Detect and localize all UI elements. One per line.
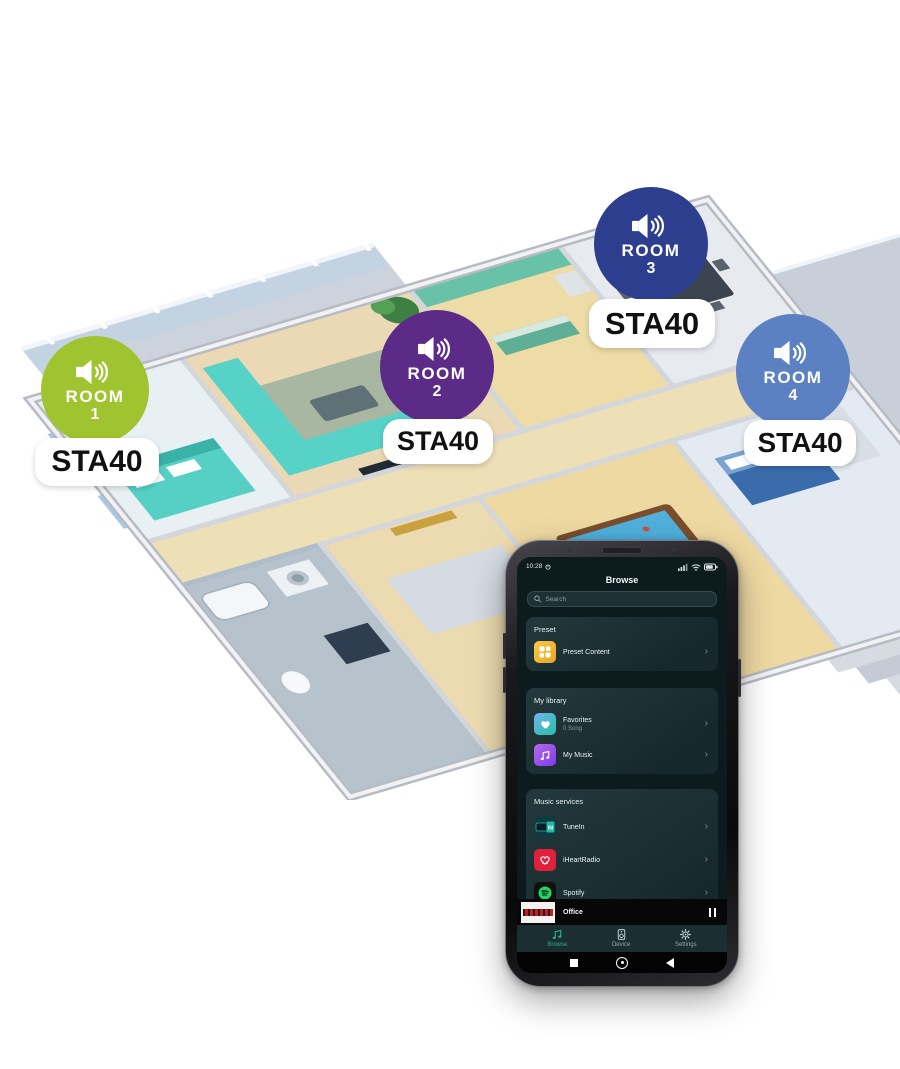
room-3-badge: ROOM 3 bbox=[594, 187, 708, 301]
wifi-icon bbox=[691, 563, 701, 571]
device-model-text: STA40 bbox=[51, 445, 142, 479]
tab-device[interactable]: Device bbox=[612, 928, 630, 949]
room-number: 2 bbox=[433, 383, 442, 400]
list-item-tunein[interactable]: IN TuneIn › bbox=[534, 816, 710, 838]
preset-grid-icon bbox=[534, 641, 556, 663]
search-input[interactable] bbox=[545, 596, 710, 603]
android-nav-bar bbox=[517, 952, 727, 973]
room-2-badge: ROOM 2 bbox=[380, 310, 494, 424]
battery-icon bbox=[704, 563, 718, 571]
page-title: Browse bbox=[517, 573, 727, 588]
preset-card: Preset Preset Content › bbox=[526, 617, 718, 671]
now-playing-title: Office bbox=[563, 909, 583, 916]
proximity-sensor-icon bbox=[672, 548, 676, 552]
heart-icon bbox=[534, 713, 556, 735]
room-4-badge: ROOM 4 bbox=[736, 314, 850, 428]
chevron-right-icon: › bbox=[705, 719, 710, 729]
alarm-icon bbox=[545, 564, 551, 570]
section-label: My library bbox=[534, 696, 710, 706]
room-3-device-label: STA40 bbox=[589, 299, 715, 348]
tab-browse[interactable]: Browse bbox=[547, 928, 567, 949]
item-sublabel: 0 Song bbox=[563, 725, 592, 733]
item-label: Favorites bbox=[563, 716, 592, 725]
room-2-device-label: STA40 bbox=[383, 419, 493, 464]
front-camera-icon bbox=[568, 548, 572, 552]
device-model-text: STA40 bbox=[757, 427, 842, 459]
speaker-icon bbox=[418, 335, 456, 363]
room-number: 3 bbox=[647, 260, 656, 277]
volume-up-button bbox=[503, 633, 506, 659]
iheartradio-logo bbox=[534, 849, 556, 871]
tunein-logo: IN bbox=[534, 816, 556, 838]
section-label: Preset bbox=[534, 625, 710, 635]
search-icon bbox=[534, 595, 541, 603]
chevron-right-icon: › bbox=[705, 822, 710, 832]
phone-screen: 10:28 Browse Preset bbox=[517, 557, 727, 973]
bottom-nav: Browse Device Settings bbox=[517, 925, 727, 952]
speaker-icon bbox=[632, 212, 670, 240]
back-triangle-icon[interactable] bbox=[666, 958, 674, 968]
album-art bbox=[521, 902, 555, 923]
my-library-card: My library Favorites 0 Song › My Musi bbox=[526, 688, 718, 774]
list-item-favorites[interactable]: Favorites 0 Song › bbox=[534, 713, 710, 735]
item-label: iHeartRadio bbox=[563, 856, 600, 865]
tab-settings[interactable]: Settings bbox=[675, 928, 697, 949]
music-note-icon bbox=[534, 744, 556, 766]
marketing-graphic: ROOM 1 ROOM 2 ROOM 3 ROOM 4 STA40 STA40 … bbox=[0, 0, 900, 1069]
room-label: ROOM bbox=[408, 365, 467, 383]
item-label: Preset Content bbox=[563, 648, 610, 657]
pause-button[interactable] bbox=[709, 908, 717, 917]
room-label: ROOM bbox=[66, 388, 125, 406]
list-item-iheartradio[interactable]: iHeartRadio › bbox=[534, 849, 710, 871]
room-label: ROOM bbox=[622, 242, 681, 260]
search-bar[interactable] bbox=[527, 591, 717, 607]
room-label: ROOM bbox=[764, 369, 823, 387]
clock-text: 10:28 bbox=[526, 563, 542, 570]
speaker-device-icon bbox=[615, 928, 628, 941]
chevron-right-icon: › bbox=[705, 888, 710, 898]
chevron-right-icon: › bbox=[705, 647, 710, 657]
status-bar: 10:28 bbox=[517, 557, 727, 573]
now-playing-bar[interactable]: Office bbox=[517, 899, 727, 925]
room-1-badge: ROOM 1 bbox=[41, 336, 149, 444]
speaker-icon bbox=[774, 339, 812, 367]
list-item-my-music[interactable]: My Music › bbox=[534, 744, 710, 766]
svg-text:IN: IN bbox=[548, 826, 553, 832]
speaker-icon bbox=[76, 358, 114, 386]
signal-icon bbox=[678, 563, 688, 571]
item-label: TuneIn bbox=[563, 823, 585, 832]
earpiece-speaker bbox=[602, 547, 642, 554]
item-label: My Music bbox=[563, 751, 593, 760]
recents-square-icon[interactable] bbox=[570, 959, 578, 967]
chevron-right-icon: › bbox=[705, 855, 710, 865]
smartphone-mockup: 10:28 Browse Preset bbox=[505, 540, 739, 987]
gear-icon bbox=[679, 928, 692, 941]
music-notes-icon bbox=[551, 928, 564, 941]
room-number: 1 bbox=[91, 406, 100, 423]
volume-down-button bbox=[503, 667, 506, 693]
room-1-device-label: STA40 bbox=[35, 438, 159, 486]
room-number: 4 bbox=[789, 387, 798, 404]
section-label: Music services bbox=[534, 797, 710, 807]
item-label: Spotify bbox=[563, 889, 584, 898]
room-4-device-label: STA40 bbox=[744, 420, 856, 466]
list-item-preset-content[interactable]: Preset Content › bbox=[534, 641, 710, 663]
device-model-text: STA40 bbox=[397, 426, 479, 457]
power-button bbox=[738, 659, 741, 697]
device-model-text: STA40 bbox=[605, 306, 699, 342]
chevron-right-icon: › bbox=[705, 750, 710, 760]
home-circle-icon[interactable] bbox=[616, 957, 628, 969]
